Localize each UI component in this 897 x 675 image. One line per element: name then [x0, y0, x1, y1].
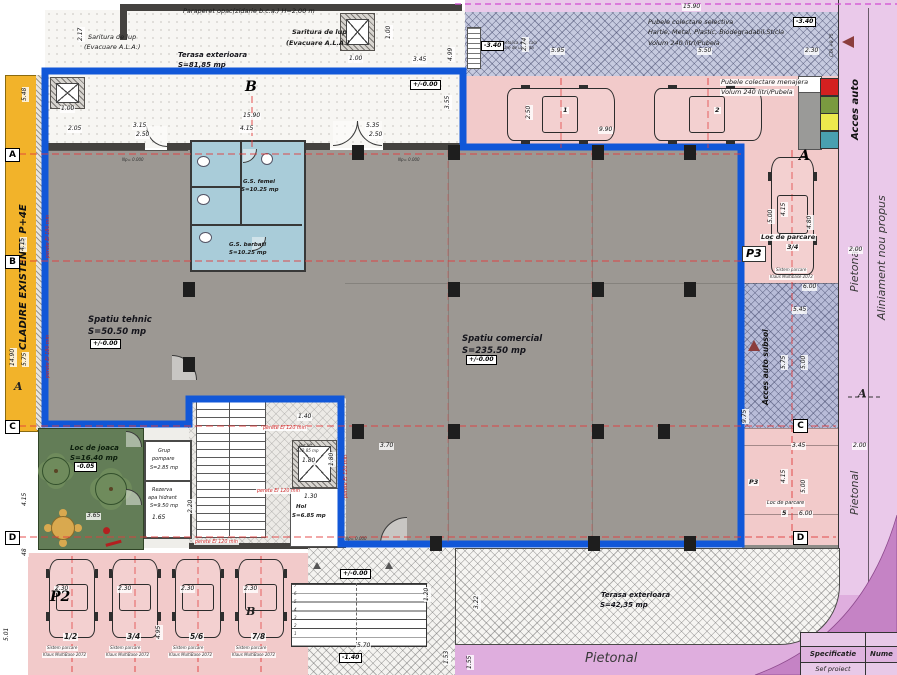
parking-5-num: 5: [781, 510, 788, 517]
sink-icon: [261, 153, 273, 165]
dimension-label: 2.30: [804, 48, 819, 55]
dimension-label: 5.00: [801, 479, 808, 494]
parking-b4-sys1: Sistem parcare: [235, 646, 267, 651]
stair-step-number: 7: [294, 584, 297, 589]
elevation-label: +/-0.00: [90, 339, 121, 349]
note-pubele-men-1: Pubele colectare menajera: [720, 79, 809, 86]
structural-column: [448, 282, 460, 297]
grid-marker-a: A: [14, 381, 23, 392]
dimension-label: 3.70: [379, 443, 394, 450]
stair-step-number: 3: [294, 616, 297, 621]
joint-line-v2: [592, 150, 593, 543]
note-saritura-1a: Saritura de lup: [88, 34, 136, 41]
parking-b1-sys2: Klaus MultiBase 2072: [42, 653, 87, 658]
car-bottom-56-icon: [173, 557, 223, 640]
dimension-label: 1.00: [60, 106, 75, 113]
grid-marker-a: A: [5, 148, 20, 162]
dimension-label: 9.75: [742, 409, 749, 424]
room-gs-femei-area: S=10.25 mp: [241, 187, 279, 193]
dimension-label: 2.50: [526, 105, 533, 120]
note-saritura-2a: Saritura de lup: [292, 29, 347, 36]
fire-4: perete EI 120 min: [344, 455, 349, 498]
stair-access-arrow-icon: [385, 562, 393, 569]
joint-line-h1: [345, 283, 740, 284]
structural-column: [592, 145, 604, 160]
dimension-label: 4.15: [781, 469, 788, 484]
joint-line-v1: [448, 150, 449, 543]
structural-column: [684, 145, 696, 160]
toilet-partition-h1: [190, 224, 302, 226]
wc-icon: [199, 232, 212, 243]
parking-b1-sys1: Sistem parcare: [46, 646, 78, 651]
grid-marker-a: A: [799, 149, 810, 163]
dimension-label: 3.22: [474, 595, 481, 610]
outdoor-stair-walkline: [356, 583, 357, 645]
dimension-label: 5.95: [550, 48, 565, 55]
structural-column: [183, 357, 195, 372]
dimension-label: 2.00: [848, 247, 863, 254]
existing-building-hatch: [36, 75, 45, 430]
parking-top-num-2: 2: [714, 107, 721, 114]
note-paraperet: Paraperet opac(zidarie b.c.a.) H=2.00 m: [183, 8, 315, 15]
street-pietonal-1: Pietonal: [849, 248, 860, 292]
dimension-label: 4.15: [239, 126, 254, 133]
dimension-label: 1.20: [424, 587, 431, 602]
dimension-label: 5.70: [356, 643, 371, 650]
dimension-label: 5.45: [792, 307, 807, 314]
fire-6: perete EI 180 min: [46, 335, 51, 378]
dimension-label: 3.15: [132, 123, 147, 130]
floor-plan: Specificatie Nume Sef proiect Paraperet …: [0, 0, 897, 675]
dimension-label: 4.15: [22, 492, 29, 507]
stair-access-arrow-icon: [313, 562, 321, 569]
tree-icon: [42, 457, 70, 485]
strip-top-right: [465, 0, 838, 12]
dimension-label: 1.80: [301, 458, 316, 465]
table-cell-empty: [866, 663, 897, 675]
toilet-partition-v1: [240, 140, 242, 226]
level-np-1: Np= 0.000: [122, 158, 144, 163]
stair-step-number: 1: [294, 632, 297, 637]
note-saritura-2b: (Evacuare A.L.A.): [286, 40, 350, 47]
stair-step-number: 2: [294, 624, 297, 629]
outdoor-stair: [291, 583, 427, 647]
interior-stair: [196, 400, 266, 538]
dimension-label: 3.55: [445, 95, 452, 110]
dimension-label: 4.15: [20, 237, 27, 252]
room-terasa-bot-area: S=42,35 mp: [600, 601, 648, 609]
room-pompare-3: S=2.85 mp: [150, 466, 178, 472]
room-tehnic: [45, 150, 190, 426]
dimension-label: 2.30: [243, 586, 258, 593]
fire-3: perete EI 120 min: [194, 540, 239, 545]
dimension-label: 1.30: [303, 494, 318, 501]
note-saritura-1b: (Evacuare A.L.A.): [84, 44, 140, 51]
dimension-label: 2.17: [78, 27, 85, 42]
room-comercial-name: Spatiu comercial: [462, 334, 542, 344]
waste-bin-icon: [820, 96, 839, 114]
room-rezerva-2: apa hidrant: [148, 496, 177, 502]
room-gs-femei-name: G.S. femei: [243, 179, 275, 185]
dimension-label: 5.00: [768, 209, 775, 224]
dimension-label: 5.75: [22, 352, 29, 367]
level-np-2: Np= 0.000: [398, 158, 420, 163]
dimension-label: 1.00: [386, 25, 393, 40]
structural-column: [588, 536, 600, 551]
fire-1: perete EI 120 min: [262, 426, 307, 431]
note-pubele-sel-1: Pubele colectare selectiva: [648, 19, 733, 26]
dimension-label: 5.50: [697, 48, 712, 55]
grid-marker-p2: P2: [50, 590, 70, 604]
tree-icon: [95, 473, 127, 505]
table-cell-sef-proiect: Sef proiect: [801, 663, 866, 675]
grid-marker-c: C: [793, 419, 808, 433]
waste-bin-icon: [820, 78, 839, 96]
dimension-label: 15.90: [242, 113, 261, 120]
dimension-label: 2.74: [522, 37, 529, 52]
dimension-label: 1.53: [444, 650, 451, 665]
structural-column: [448, 145, 460, 160]
facade-wall-seg1: [45, 143, 145, 150]
grid-marker-c: C: [5, 420, 20, 434]
dimension-label: 2.20: [188, 499, 195, 514]
car-bottom-78-icon: [236, 557, 286, 640]
bins-platform-gray: [798, 92, 822, 150]
dimension-label: 4.80: [807, 215, 814, 230]
structural-column: [592, 424, 604, 439]
stair-step-number: 4: [294, 608, 297, 613]
structural-column: [448, 424, 460, 439]
elevation-label: -3.40: [793, 17, 816, 27]
dimension-label: 1.00: [348, 56, 363, 63]
room-terasa-top-name: Terasa exterioara: [178, 51, 247, 59]
dimension-label: 14.90: [10, 348, 17, 367]
parking-b3-sys1: Sistem parcare: [172, 646, 204, 651]
fire-2: perete EI 120 min: [256, 489, 301, 494]
dimension-label: 1.65: [151, 515, 166, 522]
street-pietonal-2: Pietonal: [849, 471, 860, 515]
room-rezerva-1: Rezerva: [152, 488, 172, 494]
structural-column: [352, 424, 364, 439]
parking-b3-sys2: Klaus MultiBase 2072: [168, 653, 213, 658]
dimension-label: 2.30: [180, 586, 195, 593]
existing-building: CLADIRE EXISTENTA P+4E: [19, 204, 29, 350]
wc-icon: [197, 194, 210, 205]
structural-column: [658, 424, 670, 439]
street-pietonal-3: Pietonal: [585, 652, 637, 665]
ramp-arrow-icon: [748, 340, 760, 351]
parking-b2-num: 3/4: [126, 633, 141, 641]
dimension-label: 6.00: [798, 511, 813, 518]
room-gs-barbati-area: S=10.25 mp: [229, 250, 267, 256]
ramp-hatch: [742, 283, 838, 428]
elevation-label: -0.05: [74, 462, 97, 472]
elevation-label: -3.40: [481, 41, 504, 51]
fire-5: perete EI 180 min: [46, 215, 51, 258]
interior-stair-stringer: [229, 400, 230, 536]
wc-icon: [197, 156, 210, 167]
room-terasa-top-area: S=81,85 mp: [178, 61, 226, 69]
dimension-label: 5.00: [801, 355, 808, 370]
dimension-label: 9.90: [598, 127, 613, 134]
room-pompare-2: pompare: [152, 457, 174, 463]
waste-bin-icon: [820, 131, 839, 149]
elevation-label: -1.40: [339, 653, 362, 663]
grid-marker-d: D: [5, 531, 20, 545]
room-hol-area: S=6.85 mp: [292, 513, 326, 519]
parking-b2-sys2: Klaus MultiBase 2072: [105, 653, 150, 658]
note-pubele-men-2: Volum 240 litri/Pubela: [720, 89, 794, 96]
aliniament-divider: [868, 8, 869, 675]
structural-column: [430, 536, 442, 551]
structural-column: [592, 282, 604, 297]
structural-column: [684, 536, 696, 551]
emergency-ladder: [467, 27, 481, 69]
grid-marker-a: A: [858, 388, 867, 399]
room-terasa-bot-name: Terasa exterioara: [601, 591, 670, 599]
dimension-label: 6.00: [802, 284, 817, 291]
grid-marker-b: B: [245, 80, 257, 94]
toilet-partition-h2: [190, 186, 242, 188]
structural-column: [684, 282, 696, 297]
title-block-table: Specificatie Nume Sef proiect: [800, 632, 897, 675]
level-np-3: Np= 0.000: [345, 537, 367, 542]
dimension-label: 4.95: [156, 625, 163, 640]
room-rezerva-3: S=9.50 mp: [150, 504, 178, 510]
dimension-label: 2.50: [135, 132, 150, 139]
dimension-label: 1.40: [297, 414, 312, 421]
acces-auto-arrow-icon: [842, 36, 854, 48]
street-aliniament: Aliniament nou propus: [876, 195, 887, 320]
table-header-nume: Nume: [866, 647, 897, 662]
dimension-label: 5.75: [781, 355, 788, 370]
parking-34-label: Loc de parcare: [760, 234, 816, 241]
dimension-label: 2.50: [368, 132, 383, 139]
room-tehnic-name: Spatiu tehnic: [88, 315, 152, 325]
dimension-label: 3.45: [791, 443, 806, 450]
dimension-label: 15.90: [682, 4, 701, 11]
parking-34-sys1: Sistem parcare: [775, 268, 807, 273]
ramp-label: Acces auto subsol: [762, 329, 770, 405]
parking-b1-num: 1/2: [63, 633, 78, 641]
dimension-label: 4.99: [448, 47, 455, 62]
elevation-label: +/-0.00: [410, 80, 441, 90]
room-joaca-name: Loc de joaca: [70, 444, 119, 452]
note-pubele-sel-2: Hartie, Metal, Plastic, Biodegradabil,St…: [648, 29, 784, 36]
parking-b2-sys1: Sistem parcare: [109, 646, 141, 651]
structural-column: [183, 282, 195, 297]
picnic-table-icon: [51, 516, 75, 540]
parking-p3-small: P3: [748, 479, 759, 486]
dimension-label: 48: [22, 547, 29, 557]
elevation-label: +/-0.00: [340, 569, 371, 579]
room-putlift-area: S=2.85 mp: [296, 449, 319, 454]
parking-5-label: Loc de parcare: [766, 501, 805, 507]
parking-34-num: 3/4: [786, 244, 799, 251]
structural-column: [352, 145, 364, 160]
dimension-label: 1.80: [329, 452, 336, 467]
dimension-label: 2.00: [852, 443, 867, 450]
room-pompare-1: Grup: [158, 449, 170, 455]
dimension-label: 4.15: [781, 202, 788, 217]
dimension-label: 1.55: [467, 655, 474, 670]
elevation-label: +/-0.00: [466, 355, 497, 365]
stair-step-number: 5: [294, 600, 297, 605]
grid-marker-b: B: [246, 606, 255, 617]
parking-top-num-1: 1: [562, 107, 569, 114]
waste-bin-icon: [820, 113, 839, 131]
room-hol-name: Hol: [296, 504, 306, 510]
parking-b4-num: 7/8: [251, 633, 266, 641]
dimension-label: 5.35: [365, 123, 380, 130]
dimension-label: 2.30: [117, 586, 132, 593]
street-acces-auto: Acces auto: [851, 79, 861, 140]
dimension-label: 3.45: [412, 57, 427, 64]
grid-marker-d: D: [793, 531, 808, 545]
dimension-label: 3.65: [86, 513, 101, 520]
parking-34-sys2: Klaus Multibase 2072: [769, 275, 814, 280]
parking-b3-num: 5/6: [189, 633, 204, 641]
street-cta: CTA +9.75: [831, 33, 836, 57]
stair-step-number: 6: [294, 592, 297, 597]
grid-marker-b: B: [5, 255, 20, 269]
room-gs-barbati-name: G.S. barbati: [229, 242, 266, 248]
car-top-1-icon: [505, 86, 617, 143]
dimension-label: 5.48: [22, 87, 29, 102]
dimension-label: 5.01: [4, 627, 11, 642]
parking-b4-sys2: Klaus MultiBase 2072: [231, 653, 276, 658]
dimension-label: 2.05: [67, 126, 82, 133]
grid-marker-p3: P3: [742, 246, 766, 262]
room-tehnic-area: S=50.50 mp: [88, 327, 146, 337]
car-bottom-34-icon: [110, 557, 160, 640]
table-header-specificatie: Specificatie: [801, 647, 866, 662]
